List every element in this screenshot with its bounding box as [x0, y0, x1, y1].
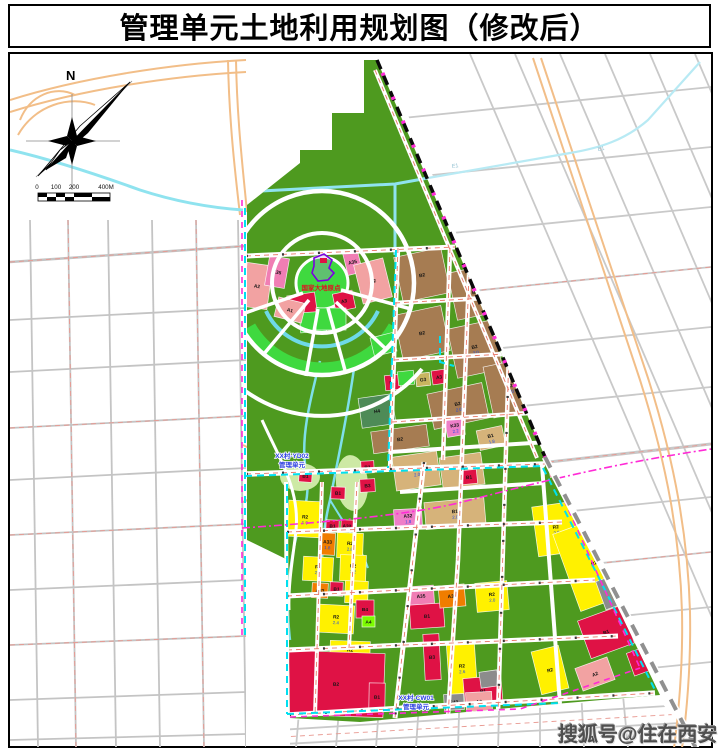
- river-label-e1: E1: [451, 163, 459, 170]
- zone-code-label: A4: [365, 619, 371, 625]
- zone-code-label: A2: [253, 283, 260, 290]
- zone-block: B1: [331, 487, 345, 499]
- scale-bar-segments: [38, 193, 110, 201]
- zone-code-label: B2: [333, 682, 340, 688]
- map-canvas: A2K35B3A3A35A2A1B2B2B2B2B22.0B22.0B22.0B…: [0, 0, 721, 756]
- zone-far-label: 2.0: [489, 597, 496, 603]
- origin-marker: [320, 258, 327, 263]
- geodetic-origin-label: 国家大地原点: [302, 283, 342, 292]
- zone-block: A4: [362, 616, 375, 627]
- zone-code-label: A3: [436, 374, 443, 381]
- compass-north-label: N: [66, 68, 75, 83]
- unit-label-line: 管理单元: [403, 702, 430, 711]
- zone-code-label: B1: [374, 695, 381, 701]
- zone-code-label: H4: [374, 408, 381, 415]
- zone-code-label: B4: [362, 607, 368, 613]
- zone-block: [479, 670, 499, 688]
- watermark: 搜狐号@住在西安: [558, 718, 718, 747]
- zone-code-label: B3: [364, 483, 371, 489]
- zone-code-label: B3: [429, 655, 436, 661]
- page-title: 管理单元土地利用规划图（修改后）: [119, 5, 599, 47]
- scale-label-200: 200: [69, 184, 80, 191]
- zone-block: B3: [423, 634, 441, 681]
- zone-far-label: 2.4: [333, 620, 340, 625]
- zone-code-label: B1: [335, 491, 342, 497]
- scale-label-100: 100: [51, 184, 62, 191]
- zone-code-label: A35: [416, 593, 426, 600]
- zone-block: B2: [394, 248, 451, 303]
- scale-label-0: 0: [35, 184, 39, 191]
- zone-code-label: B2: [397, 436, 404, 443]
- zone-code-label: G3: [420, 377, 427, 384]
- unit-label-line: XX村-CW01: [398, 693, 434, 702]
- unit-label-line: 管理单元: [279, 460, 306, 469]
- zone-block: B2: [394, 306, 451, 361]
- unit-label-line: XX村-YD02: [275, 451, 309, 460]
- zone-far-label: 1.8: [405, 519, 412, 524]
- zone-code-label: B1: [466, 474, 473, 481]
- scale-label-400m: 400M: [98, 184, 113, 191]
- zone-far-label: 1.8: [324, 545, 331, 550]
- zone-far-label: 2.6: [459, 669, 466, 674]
- zone-block: B3: [360, 479, 376, 493]
- planning-map-page: A2K35B3A3A35A2A1B2B2B2B2B22.0B22.0B22.0B…: [0, 0, 721, 756]
- zone-block: B4: [356, 600, 374, 618]
- title-box: 管理单元土地利用规划图（修改后）: [8, 4, 711, 48]
- river-label-e1: E1: [597, 146, 605, 153]
- zone-code-label: B1: [424, 614, 431, 620]
- zone-block: B1: [409, 603, 445, 629]
